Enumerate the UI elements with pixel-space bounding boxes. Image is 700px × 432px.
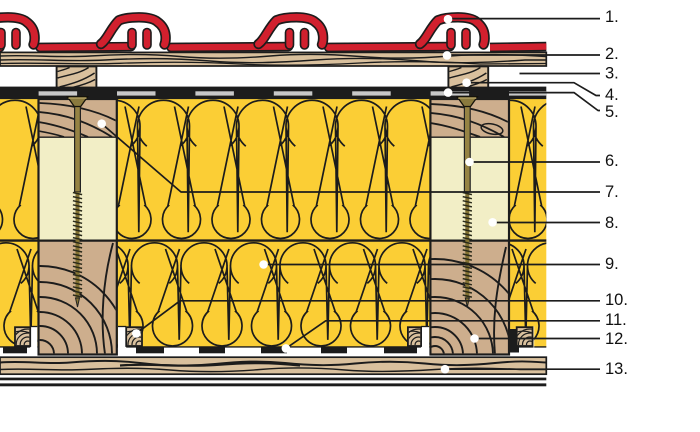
svg-text:9.: 9.: [605, 255, 619, 273]
svg-text:5.: 5.: [605, 103, 619, 121]
svg-text:1.: 1.: [605, 8, 619, 26]
svg-text:11.: 11.: [605, 311, 627, 329]
svg-text:8.: 8.: [605, 214, 619, 232]
svg-text:4.: 4.: [605, 86, 619, 104]
svg-text:2.: 2.: [605, 45, 619, 63]
svg-text:12.: 12.: [605, 330, 628, 348]
svg-text:7.: 7.: [605, 183, 619, 201]
svg-text:13.: 13.: [605, 360, 628, 378]
svg-text:10.: 10.: [605, 291, 628, 309]
svg-text:3.: 3.: [605, 65, 619, 83]
svg-text:6.: 6.: [605, 152, 619, 170]
